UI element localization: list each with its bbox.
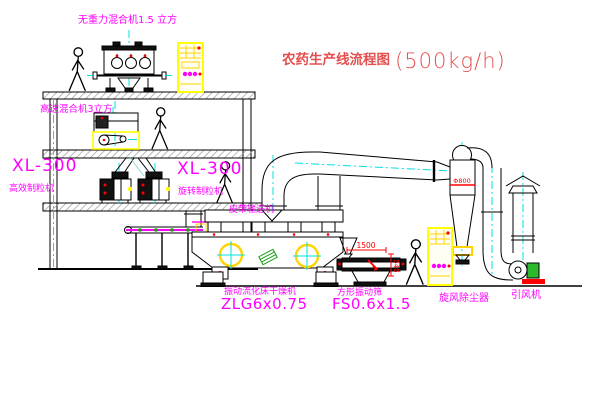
exhaust-duct [259,152,450,210]
cad-flow-diagram: 1500 545 Φ800 农药生产线流程图 (500kg/h) 无重力混合机1… [0,0,600,403]
fluid-bed-dryer [192,210,343,287]
granulator-section [100,158,170,203]
control-cabinet-2 [428,228,452,285]
person-icon [69,48,85,91]
dim-sieve-length: 1500 [356,241,375,250]
label-dryer-model: ZLG6x0.75 [221,297,308,312]
label-high-speed-mixer: 高速混合机3立方 [40,105,113,115]
dim-sieve-height: 545 [392,259,400,272]
diagram-title: 农药生产线流程图 (500kg/h) [282,48,506,73]
label-induced-draft-fan: 引风机 [511,291,541,301]
fan-and-stack [481,168,545,284]
dim-cyclone-diameter: Φ800 [453,177,471,185]
label-belt-conveyor: 皮带输送机 [229,206,274,215]
label-granulator-mid-model: XL-300 [177,161,242,178]
title-capacity: (500kg/h) [395,49,506,73]
label-granulator-left-model: XL-300 [12,158,77,175]
label-granulator-mid-name: 旋转制粒机 [178,188,223,197]
label-granulator-left-name: 高效制粒机 [9,185,54,194]
person-icon [406,240,423,285]
floor-slab-top [43,92,255,99]
title-chinese: 农药生产线流程图 [282,52,390,68]
label-cyclone: 旋风除尘器 [439,294,489,304]
label-zero-gravity-mixer: 无重力混合机1.5 立方 [78,16,177,26]
control-cabinet-1 [178,43,203,92]
label-sieve-model: FS0.6x1.5 [332,297,411,312]
cyclone-dust-collector [450,146,492,265]
person-icon [152,108,168,149]
